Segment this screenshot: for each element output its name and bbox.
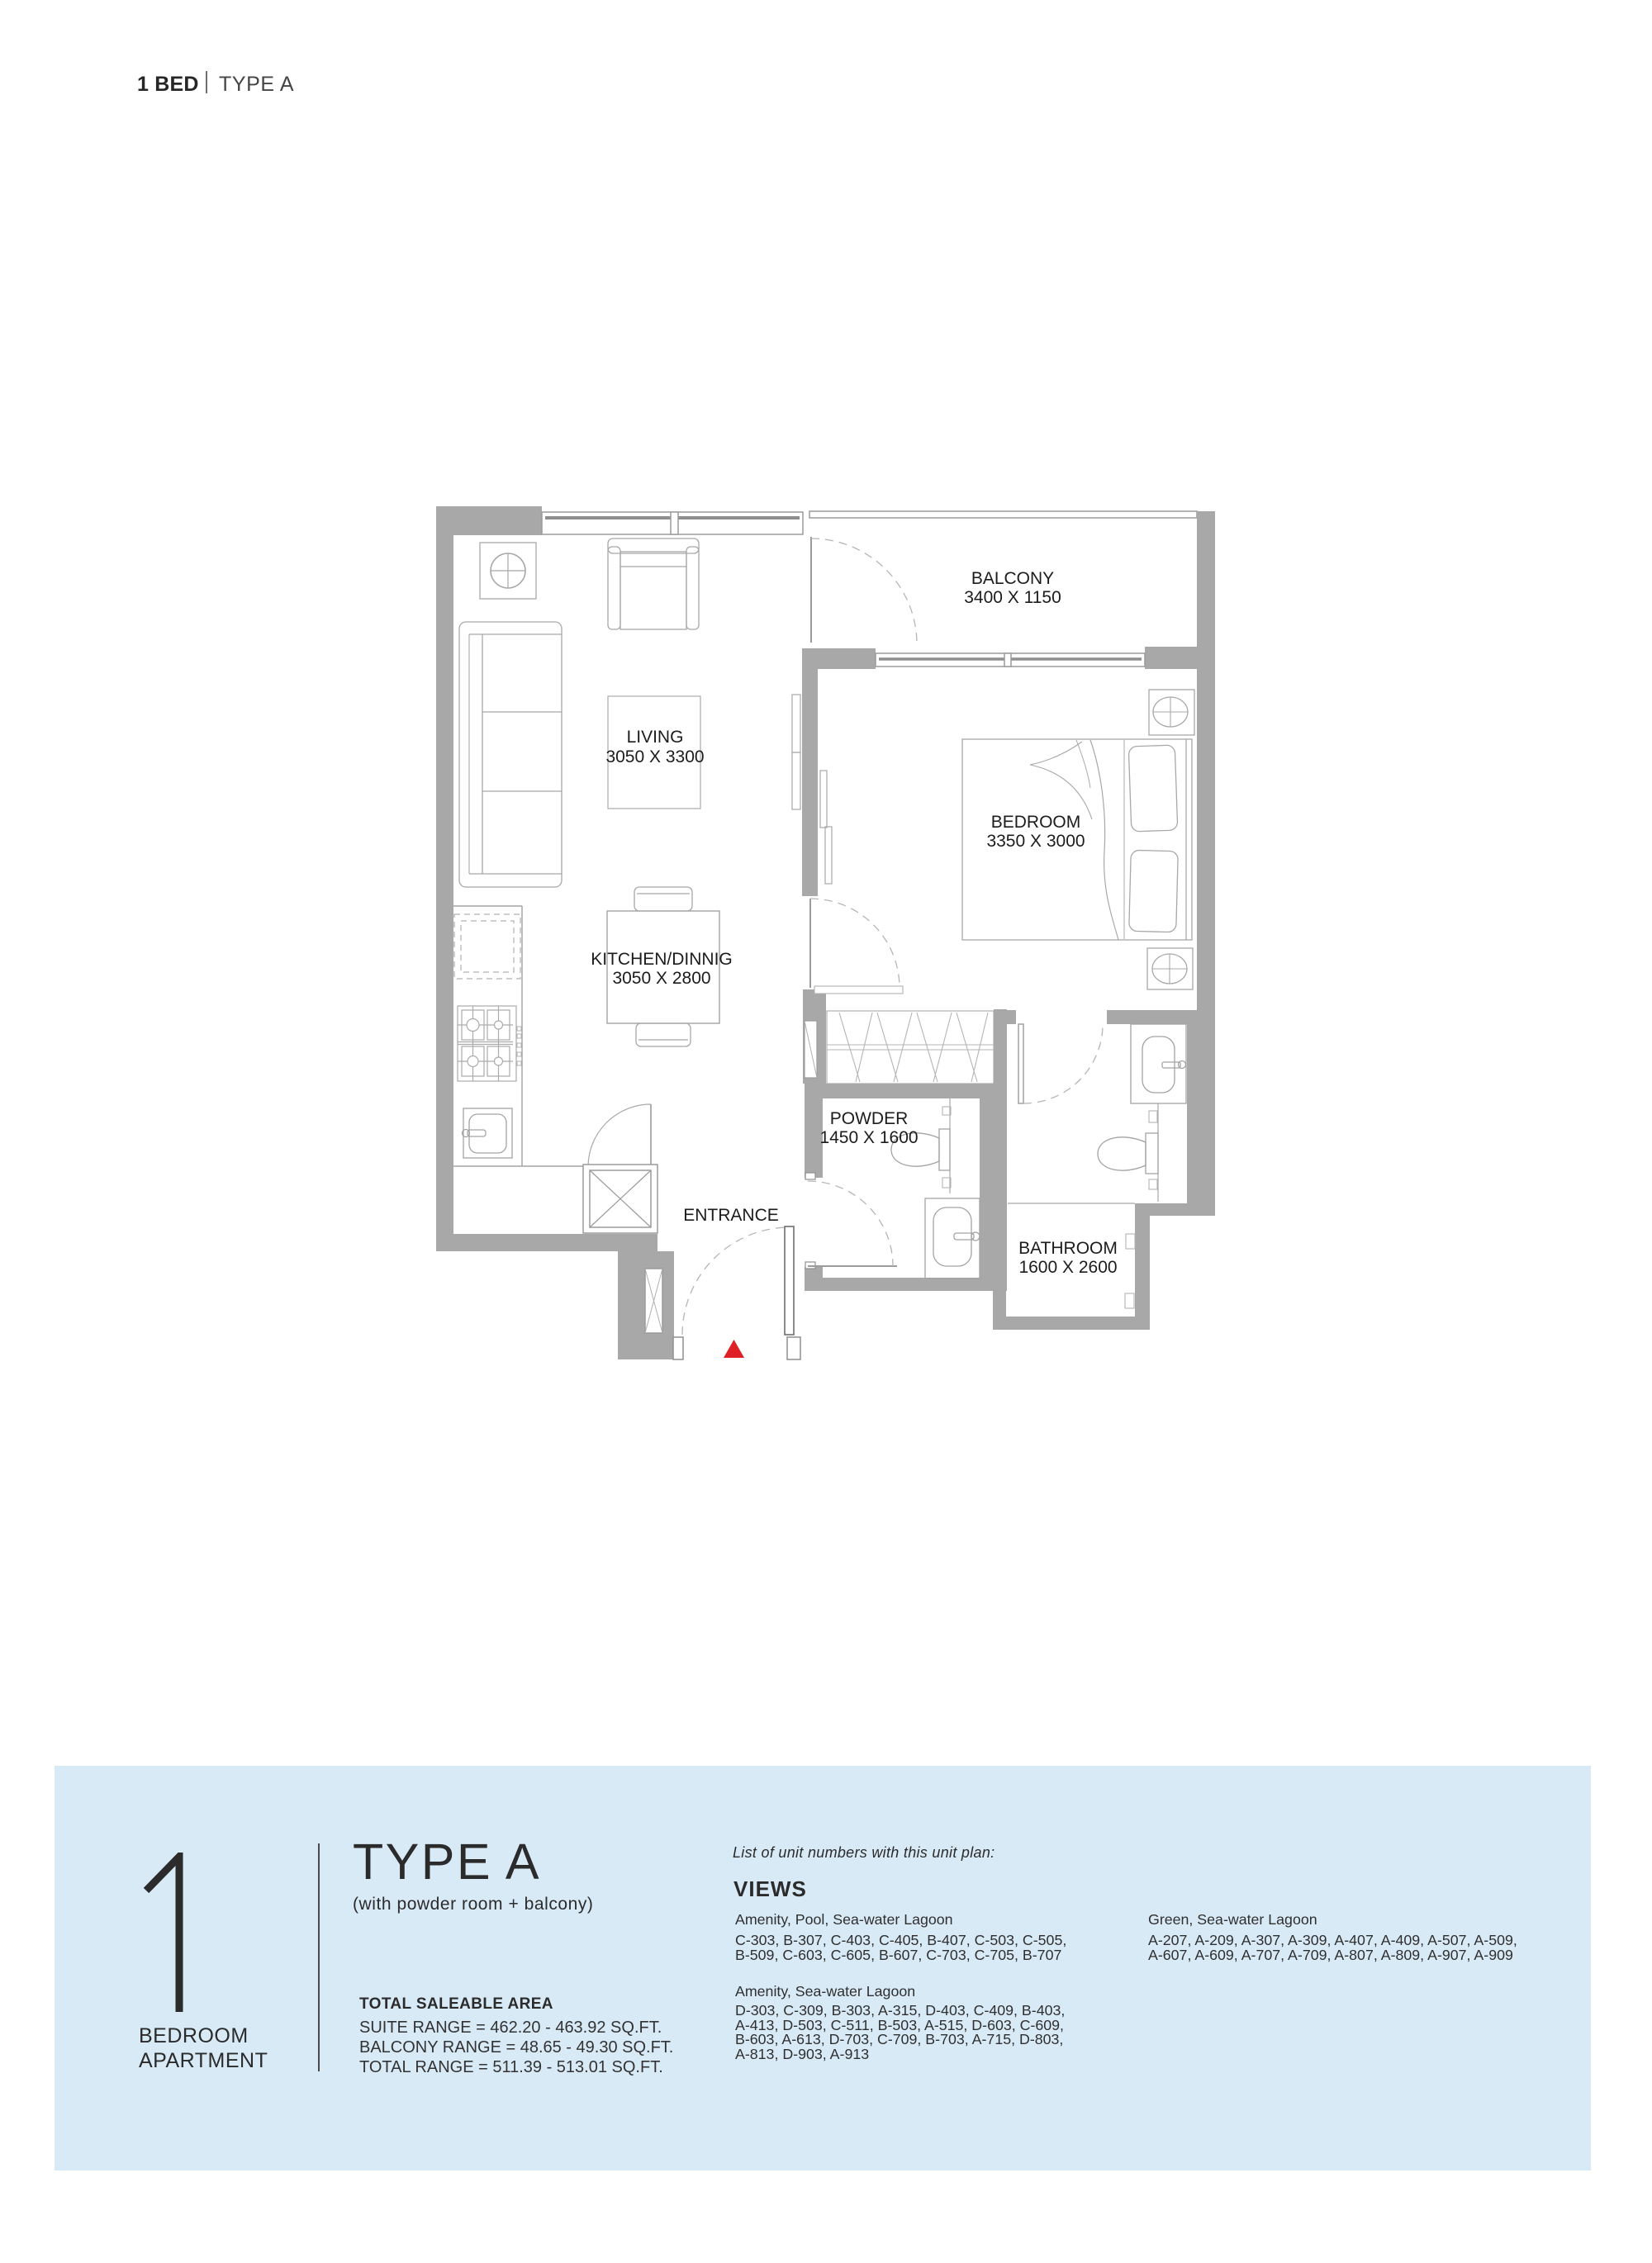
svg-text:3050 X 3300: 3050 X 3300 [605, 747, 704, 766]
svg-text:KITCHEN/DINNIG: KITCHEN/DINNIG [591, 950, 733, 969]
svg-text:1450 X 1600: 1450 X 1600 [819, 1128, 918, 1147]
svg-text:BALCONY: BALCONY [971, 569, 1054, 588]
svg-text:POWDER: POWDER [830, 1109, 909, 1128]
svg-text:BEDROOM: BEDROOM [991, 813, 1081, 832]
svg-text:3050 X 2800: 3050 X 2800 [612, 969, 710, 988]
svg-text:BATHROOM: BATHROOM [1018, 1239, 1118, 1258]
svg-text:ENTRANCE: ENTRANCE [683, 1206, 779, 1225]
svg-text:3350 X 3000: 3350 X 3000 [986, 832, 1085, 851]
svg-text:1600 X 2600: 1600 X 2600 [1018, 1258, 1117, 1277]
svg-text:LIVING: LIVING [627, 728, 684, 747]
svg-text:3400 X 1150: 3400 X 1150 [964, 588, 1061, 607]
